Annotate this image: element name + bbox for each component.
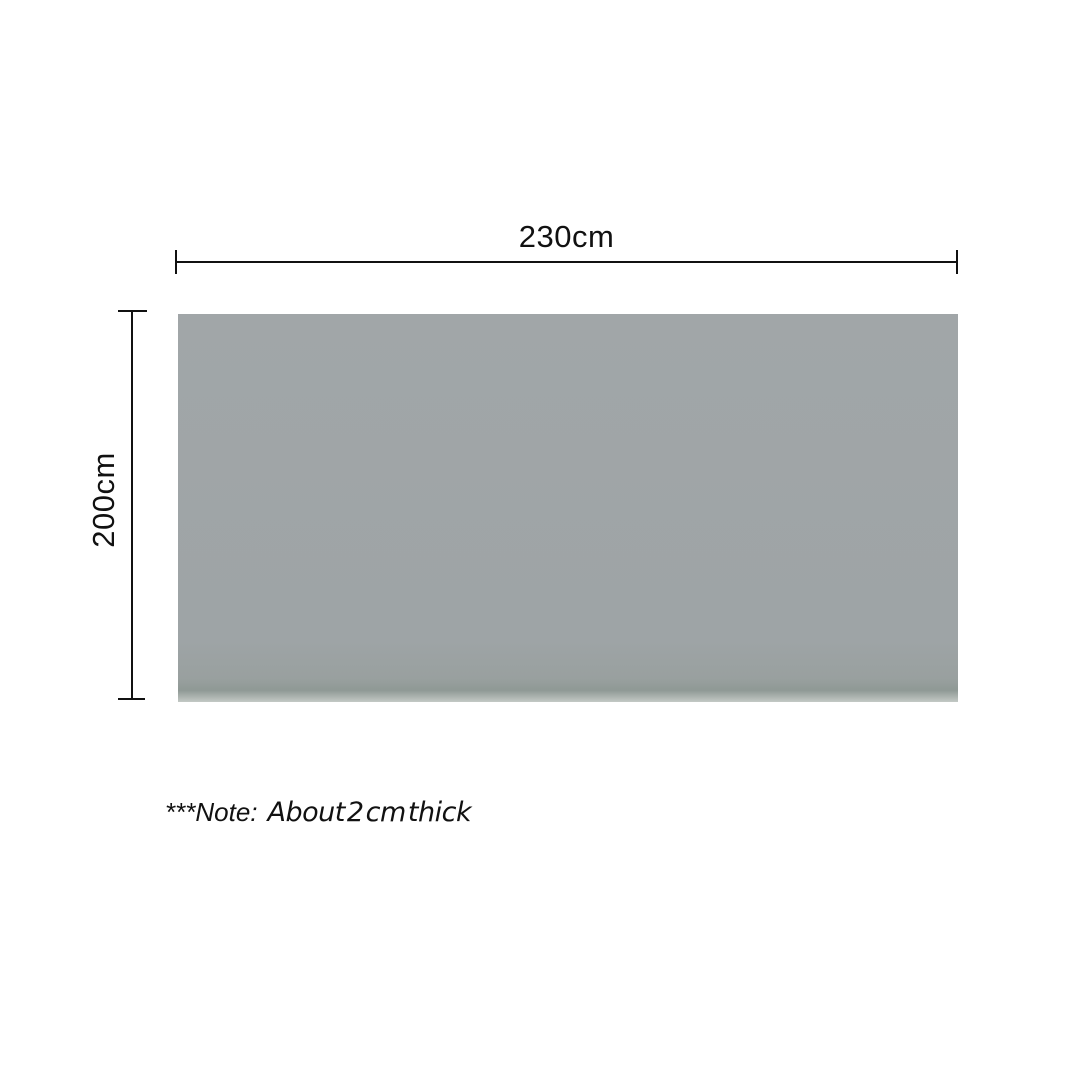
dimension-end-tick-right xyxy=(956,250,958,274)
dimension-end-tick-bottom xyxy=(118,698,145,700)
note-prefix: ***Note: xyxy=(165,797,258,828)
dimension-line-horizontal xyxy=(175,261,958,263)
product-dimension-diagram: 230cm 200cm ***Note: About 2 cm thick xyxy=(0,0,1080,1080)
height-label: 200cm xyxy=(86,452,122,548)
product-panel xyxy=(178,314,958,702)
note: ***Note: About 2 cm thick xyxy=(165,797,471,828)
height-dimension-line xyxy=(118,310,147,700)
width-dimension-line xyxy=(175,250,958,274)
dimension-line-vertical xyxy=(131,310,133,700)
note-text: About 2 cm thick xyxy=(268,797,472,828)
